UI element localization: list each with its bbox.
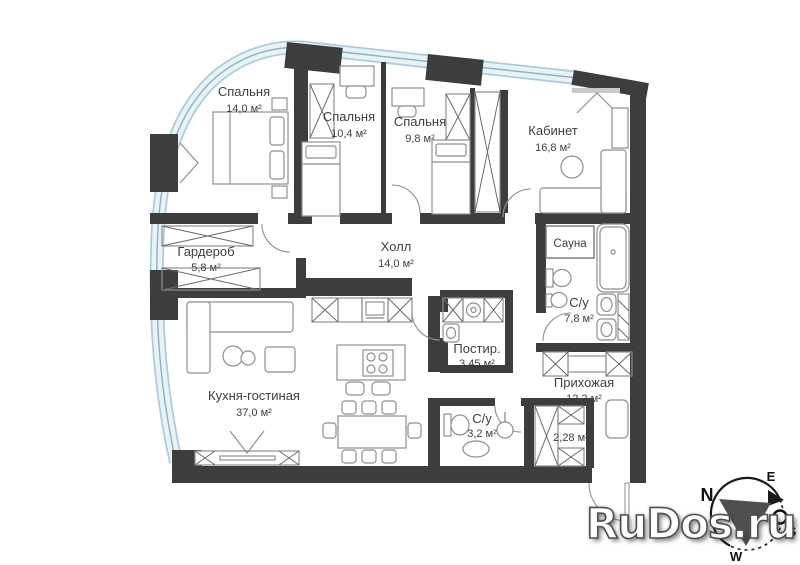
compass-e-label: E	[767, 469, 776, 484]
room-area: 3,2 м²	[467, 428, 497, 440]
double-bed	[213, 112, 288, 184]
room-bedroom-3: Спальня 9,8 м²	[392, 88, 470, 214]
room-label: Постир.	[453, 341, 500, 356]
room-label: С/у	[569, 295, 589, 310]
closet-column	[475, 92, 500, 212]
room-area: 7,8 м²	[564, 313, 594, 325]
coffee-table	[241, 351, 255, 365]
room-label: Прихожая	[554, 375, 614, 390]
sink	[597, 319, 616, 340]
wardrobe-box	[446, 94, 470, 140]
room-label: Кабинет	[528, 123, 577, 138]
room-area: 5,8 м²	[191, 262, 221, 274]
oven-icon	[362, 298, 388, 322]
desk	[392, 88, 424, 106]
coffee-table	[223, 346, 243, 366]
room-area: 10,4 м²	[331, 128, 367, 140]
single-bed	[302, 142, 340, 216]
nightstand	[272, 186, 287, 198]
closet-box	[543, 352, 568, 376]
room-label: Кухня-гостиная	[208, 388, 300, 403]
room-bathroom-guest: С/у 3,2 м²	[444, 411, 513, 457]
shaft-hatch	[618, 294, 629, 340]
room-area: 2,28 м²	[553, 432, 589, 444]
shelf	[572, 88, 620, 93]
room-label: Сауна	[553, 238, 587, 250]
stool	[372, 382, 390, 395]
floor-plan-page: Спальня 14,0 м² Спальня 10,4 м²	[0, 0, 800, 565]
room-area: 14,0 м²	[378, 258, 414, 270]
room-area: 3,45 м²	[459, 358, 495, 370]
closet-box	[606, 352, 632, 376]
room-bedroom-2: Спальня 10,4 м²	[302, 66, 375, 216]
chair	[346, 86, 366, 98]
room-label: Холл	[381, 239, 412, 254]
room-label: Гардероб	[177, 244, 234, 259]
desk	[340, 66, 374, 86]
single-bed	[432, 140, 470, 214]
room-kitchen-living: Кухня-гостиная 37,0 м²	[187, 298, 421, 465]
kitchen-island	[337, 345, 405, 395]
room-area: 9,8 м²	[405, 133, 435, 145]
sink	[597, 294, 616, 315]
toilet	[444, 414, 469, 436]
bathtub	[597, 224, 629, 292]
room-label: Спальня	[394, 114, 446, 129]
room-storage: 2,28 м²	[535, 406, 589, 466]
room-area: 37,0 м²	[236, 407, 272, 419]
compass-w-label: W	[730, 549, 743, 564]
room-area: 12,2 м²	[566, 393, 602, 405]
round-table	[561, 156, 583, 178]
room-area: 16,8 м²	[535, 142, 571, 154]
room-label: Спальня	[323, 109, 375, 124]
room-hall: Холл 14,0 м²	[378, 239, 414, 270]
shower-tray	[463, 441, 489, 457]
floor-mat	[606, 400, 628, 438]
washing-machine	[463, 298, 484, 322]
stool	[346, 382, 364, 395]
kitchen-counter	[312, 298, 412, 322]
closet-box	[558, 406, 584, 424]
corner-sofa	[540, 150, 626, 213]
toilet	[546, 269, 571, 287]
room-study: Кабинет 16,8 м²	[528, 88, 628, 213]
armchair	[265, 347, 295, 372]
room-sauna: Сауна	[546, 226, 594, 258]
wardrobe-chevron-icon	[577, 93, 617, 113]
tv-stand	[195, 431, 299, 465]
wardrobe-chevron-icon	[180, 143, 198, 183]
closet-box	[162, 226, 253, 246]
room-area: 14,0 м²	[226, 103, 262, 115]
desk	[612, 108, 628, 148]
bidet	[546, 293, 567, 308]
cabinet-box	[484, 298, 503, 322]
room-label: С/у	[472, 411, 492, 426]
tv-icon	[230, 431, 264, 453]
bench	[568, 356, 606, 372]
closet-box	[558, 448, 584, 466]
nightstand	[272, 98, 287, 110]
dining-table	[323, 401, 421, 463]
floor-plan-svg: Спальня 14,0 м² Спальня 10,4 м²	[0, 0, 800, 565]
room-laundry: Постир. 3,45 м²	[443, 298, 503, 370]
watermark-logo: RuDos.ru	[586, 501, 796, 547]
room-label: Спальня	[218, 84, 270, 99]
sink	[497, 412, 513, 438]
laundry-sink	[443, 324, 459, 342]
